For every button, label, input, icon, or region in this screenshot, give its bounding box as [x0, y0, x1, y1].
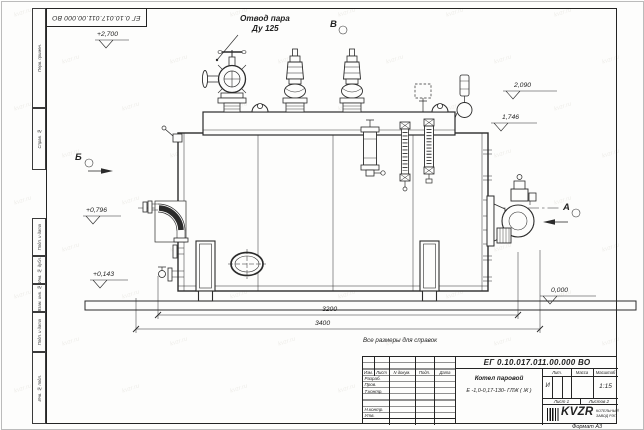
feedwater-elbow	[143, 201, 188, 242]
kvzr-logo-icon	[547, 408, 559, 421]
view-label-b: Б	[75, 152, 82, 163]
product-name-line1: Котел паровой	[456, 375, 542, 382]
elevation-2700: +2,700	[97, 31, 118, 38]
product-name-line2: Е -1,0-0,17-130- ГЛЖ ( Ж )	[456, 388, 542, 394]
company-line2: ЗАВОД РЭП	[596, 414, 617, 418]
elevation-2090: 2,090	[514, 82, 531, 89]
drawing-sheet: kvzr.rukvzr.rukvzr.rukvzr.rukvzr.rukvzr.…	[0, 0, 644, 430]
steam-outlet-valve	[202, 50, 246, 112]
safety-valve-1	[283, 49, 307, 112]
company-line1: КОТЕЛЬНЫЙ	[596, 409, 619, 413]
title-block-right: Лит. Масса Масштаб И 1:15 Лист 1 Листов …	[543, 369, 618, 425]
water-level-gauge-2	[424, 119, 434, 183]
col-ndoc: N докум.	[389, 370, 415, 375]
row-prov: Пров.	[365, 382, 377, 387]
scale-value: 1:15	[593, 383, 618, 390]
product-name-cell: Котел паровой Е -1,0-0,17-130- ГЛЖ ( Ж )	[456, 369, 543, 425]
kvzr-logo-text: KVZR	[561, 406, 594, 418]
view-label-a: А	[563, 202, 570, 213]
document-number: ЕГ 0.10.017.011.00.000 ВО	[484, 358, 591, 367]
title-block: Изм. Лист N докум. Подп. Дата Разраб. Пр…	[362, 356, 617, 424]
row-utv: Утв.	[365, 413, 375, 418]
support-skid-left	[196, 241, 215, 301]
col-podp: Подп.	[415, 370, 434, 375]
row-nkontr: Н.контр.	[365, 407, 384, 412]
steam-outlet-callout-line1: Отвод пара	[240, 14, 290, 23]
safety-valve-2	[340, 49, 364, 112]
boiler-body	[178, 133, 488, 291]
dimension-inner: 3200	[322, 306, 337, 313]
col-izm: Изм.	[363, 370, 374, 375]
row-tkontr: Т.контр.	[365, 389, 383, 394]
elevation-0796: +0,796	[86, 207, 107, 214]
reference-note: Все размеры для справок	[363, 337, 437, 344]
ground-hatching	[85, 301, 636, 310]
row-razrab: Разраб.	[365, 376, 381, 381]
view-label-v: В	[330, 19, 337, 30]
dimension-outer: 3400	[315, 320, 330, 327]
water-level-gauge-1	[400, 122, 410, 191]
elevation-1746: 1,746	[502, 114, 519, 121]
steam-outlet-callout-line2: Ду 125	[252, 24, 279, 33]
document-number-cell: ЕГ 0.10.017.011.00.000 ВО	[456, 357, 618, 369]
burner-assembly	[483, 175, 536, 247]
mass-header: Масса	[571, 370, 593, 375]
corner-tap-valve	[162, 126, 182, 142]
hidden-component-dashed	[415, 84, 431, 112]
lit-value: И	[543, 383, 552, 389]
lit-header: Лит.	[543, 370, 571, 375]
support-skid-right	[420, 241, 439, 301]
steam-manifold	[203, 112, 455, 135]
col-data: Дата	[434, 370, 456, 375]
col-list: Лист	[374, 370, 389, 375]
sheet-cell: Лист 1	[543, 399, 580, 404]
elevation-0143: +0,143	[93, 271, 114, 278]
elevation-zero: 0,000	[551, 287, 568, 294]
pressure-gauge-siphon	[455, 75, 472, 118]
scale-header: Масштаб	[593, 370, 618, 375]
sheets-cell: Листов 2	[580, 399, 618, 404]
